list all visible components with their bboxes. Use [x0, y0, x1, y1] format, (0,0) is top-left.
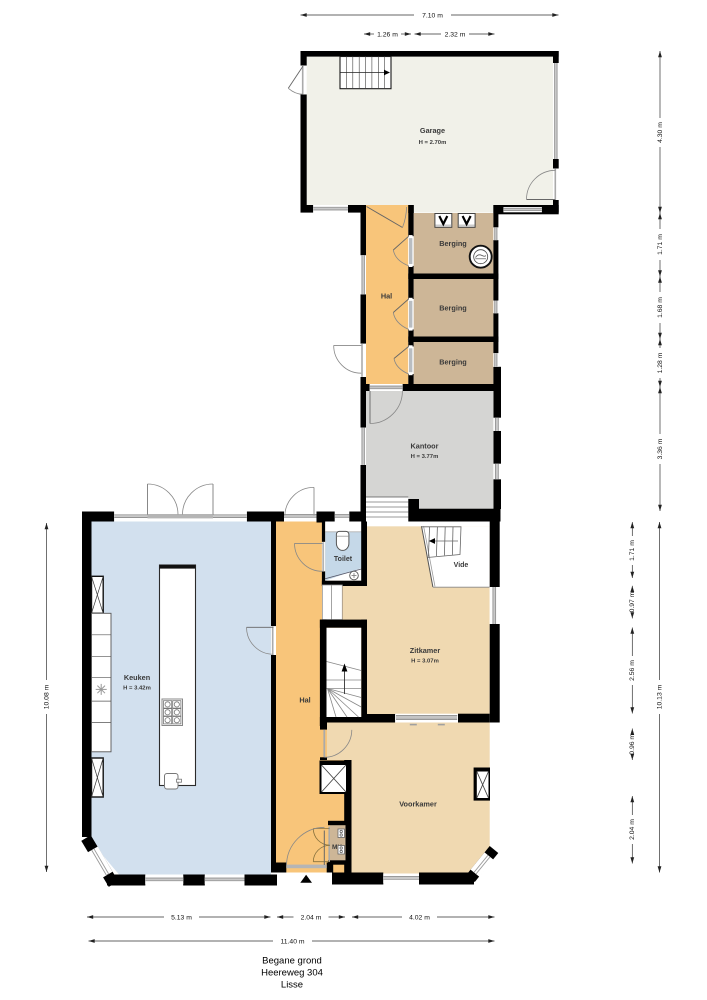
- svg-text:2.04 m: 2.04 m: [629, 819, 636, 840]
- svg-text:0.96 m: 0.96 m: [629, 734, 636, 755]
- svg-text:2.32 m: 2.32 m: [445, 32, 466, 39]
- svg-text:Begane grond: Begane grond: [262, 956, 322, 967]
- svg-text:11.40 m: 11.40 m: [280, 939, 304, 946]
- svg-text:1.68 m: 1.68 m: [657, 297, 664, 318]
- svg-text:1.71 m: 1.71 m: [629, 540, 636, 561]
- svg-text:4.30 m: 4.30 m: [657, 122, 664, 143]
- svg-text:1.71 m: 1.71 m: [657, 234, 664, 255]
- svg-text:H = 2.70m: H = 2.70m: [419, 140, 447, 146]
- svg-text:Lisse: Lisse: [281, 980, 303, 991]
- svg-text:2.56 m: 2.56 m: [629, 660, 636, 681]
- svg-text:1.28 m: 1.28 m: [657, 352, 664, 373]
- svg-text:3.36 m: 3.36 m: [657, 438, 664, 459]
- svg-text:Hal: Hal: [381, 292, 392, 301]
- svg-text:Kantoor: Kantoor: [411, 442, 439, 451]
- svg-text:Voorkamer: Voorkamer: [399, 800, 437, 809]
- svg-text:5.13 m: 5.13 m: [171, 915, 192, 922]
- svg-text:4.02 m: 4.02 m: [409, 915, 430, 922]
- svg-text:Vide: Vide: [454, 562, 469, 569]
- svg-text:Keuken: Keuken: [124, 673, 150, 682]
- svg-text:1.26 m: 1.26 m: [377, 32, 398, 39]
- svg-text:Toilet: Toilet: [334, 556, 353, 563]
- svg-text:Berging: Berging: [439, 304, 467, 313]
- svg-text:0.97 m: 0.97 m: [629, 591, 636, 612]
- svg-text:H = 3.77m: H = 3.77m: [411, 454, 439, 460]
- svg-text:H = 3.07m: H = 3.07m: [411, 659, 439, 665]
- svg-text:10.13 m: 10.13 m: [656, 684, 663, 709]
- svg-text:7.10 m: 7.10 m: [422, 13, 443, 20]
- svg-text:Berging: Berging: [439, 358, 467, 367]
- svg-text:Hal: Hal: [299, 696, 310, 705]
- svg-text:Heereweg 304: Heereweg 304: [261, 968, 323, 979]
- svg-text:H = 3.42m: H = 3.42m: [123, 686, 151, 692]
- svg-text:10.08 m: 10.08 m: [43, 684, 50, 709]
- svg-text:Garage: Garage: [420, 126, 445, 135]
- svg-text:Zitkamer: Zitkamer: [410, 646, 441, 655]
- svg-text:2.04 m: 2.04 m: [301, 915, 322, 922]
- svg-text:Berging: Berging: [439, 239, 467, 248]
